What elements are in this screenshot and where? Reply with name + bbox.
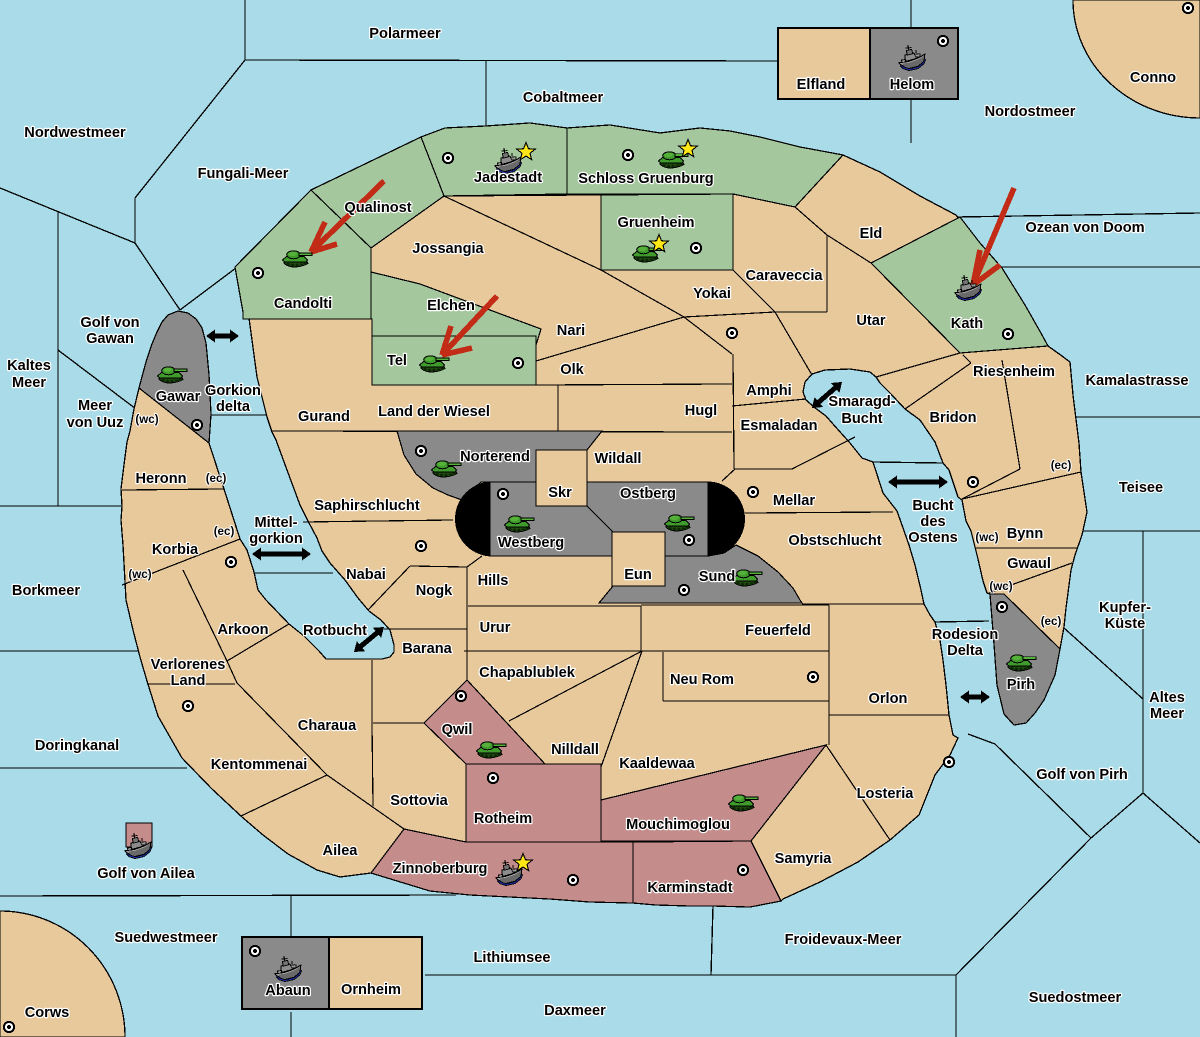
svg-text:Rotbucht: Rotbucht: [303, 623, 367, 639]
svg-text:Nabai: Nabai: [346, 567, 386, 583]
svg-text:Gawar: Gawar: [156, 389, 201, 405]
svg-text:Charaua: Charaua: [298, 718, 357, 734]
svg-text:(ec): (ec): [214, 525, 235, 538]
svg-text:Chapablublek: Chapablublek: [479, 665, 576, 681]
svg-text:Bridon: Bridon: [929, 410, 976, 426]
svg-text:Jossangia: Jossangia: [412, 241, 484, 257]
svg-text:Kamalastrasse: Kamalastrasse: [1085, 373, 1188, 389]
svg-text:Kaaldewaa: Kaaldewaa: [619, 756, 695, 772]
svg-text:Teisee: Teisee: [1119, 480, 1163, 496]
svg-text:Gruenheim: Gruenheim: [617, 215, 694, 231]
svg-text:Jadestadt: Jadestadt: [474, 170, 542, 186]
svg-text:Pirh: Pirh: [1007, 677, 1035, 693]
svg-text:Fungali-Meer: Fungali-Meer: [198, 166, 289, 182]
svg-text:Golf von Pirh: Golf von Pirh: [1036, 767, 1128, 783]
svg-text:Corws: Corws: [25, 1005, 70, 1021]
svg-text:Losteria: Losteria: [857, 786, 915, 802]
svg-text:Gurand: Gurand: [298, 409, 350, 425]
svg-text:Meer: Meer: [78, 398, 112, 414]
svg-text:Neu Rom: Neu Rom: [670, 672, 734, 688]
svg-text:Conno: Conno: [1130, 70, 1176, 86]
svg-text:Borkmeer: Borkmeer: [12, 583, 80, 599]
svg-text:Ozean von Doom: Ozean von Doom: [1025, 220, 1144, 236]
svg-text:des: des: [920, 514, 945, 530]
svg-text:Kentommenai: Kentommenai: [211, 757, 308, 773]
svg-text:(ec): (ec): [1041, 615, 1062, 628]
svg-text:Nordwestmeer: Nordwestmeer: [24, 125, 126, 141]
svg-text:(wc): (wc): [975, 531, 998, 544]
svg-text:Froidevaux-Meer: Froidevaux-Meer: [785, 932, 902, 948]
svg-text:Land der Wiesel: Land der Wiesel: [378, 404, 490, 420]
svg-text:Sottovia: Sottovia: [390, 793, 448, 809]
svg-text:Eld: Eld: [860, 226, 883, 242]
svg-text:Utar: Utar: [856, 313, 886, 329]
svg-text:Amphi: Amphi: [746, 383, 791, 399]
svg-text:Suedwestmeer: Suedwestmeer: [114, 930, 217, 946]
svg-text:Heronn: Heronn: [135, 471, 186, 487]
svg-text:Kath: Kath: [951, 316, 984, 332]
svg-text:Land: Land: [171, 673, 206, 689]
svg-text:Nogk: Nogk: [416, 583, 453, 599]
svg-text:Bucht: Bucht: [841, 411, 882, 427]
svg-text:Qwil: Qwil: [442, 722, 473, 738]
svg-text:Ornheim: Ornheim: [341, 982, 401, 998]
svg-text:Hills: Hills: [478, 573, 509, 589]
svg-text:Arkoon: Arkoon: [217, 622, 268, 638]
svg-text:Gorkion: Gorkion: [205, 383, 261, 399]
svg-text:Elfland: Elfland: [797, 77, 846, 93]
svg-text:Norterend: Norterend: [460, 449, 530, 465]
svg-text:Samyria: Samyria: [775, 851, 833, 867]
svg-text:Barana: Barana: [402, 641, 452, 657]
svg-text:Zinnoberburg: Zinnoberburg: [393, 861, 488, 877]
svg-text:delta: delta: [216, 399, 251, 415]
svg-text:Elchen: Elchen: [427, 298, 475, 314]
svg-text:(ec): (ec): [206, 472, 227, 485]
svg-text:Verlorenes: Verlorenes: [151, 657, 226, 673]
svg-text:Meer: Meer: [1150, 706, 1184, 722]
svg-text:Eun: Eun: [624, 567, 652, 583]
svg-text:Gawan: Gawan: [86, 331, 134, 347]
svg-text:Abaun: Abaun: [265, 983, 310, 999]
svg-text:Lithiumsee: Lithiumsee: [473, 950, 550, 966]
svg-text:(wc): (wc): [135, 413, 158, 426]
svg-text:Hugl: Hugl: [685, 403, 717, 419]
svg-text:Urur: Urur: [480, 620, 511, 636]
svg-text:Delta: Delta: [947, 643, 984, 659]
svg-text:Bucht: Bucht: [912, 498, 953, 514]
svg-text:Helom: Helom: [890, 77, 935, 93]
svg-text:Nordostmeer: Nordostmeer: [985, 104, 1076, 120]
svg-text:Olk: Olk: [560, 362, 584, 378]
svg-text:Esmaladan: Esmaladan: [740, 418, 817, 434]
svg-text:Caraveccia: Caraveccia: [745, 268, 823, 284]
svg-text:von Uuz: von Uuz: [67, 415, 124, 431]
svg-text:Wildall: Wildall: [595, 451, 642, 467]
svg-text:Altes: Altes: [1149, 690, 1185, 706]
svg-text:(ec): (ec): [1051, 459, 1072, 472]
svg-text:gorkion: gorkion: [249, 531, 303, 547]
svg-text:Kupfer-: Kupfer-: [1099, 600, 1151, 616]
svg-text:Orlon: Orlon: [869, 691, 908, 707]
svg-text:Sund: Sund: [699, 569, 735, 585]
svg-text:Rotheim: Rotheim: [474, 811, 532, 827]
svg-text:Ostens: Ostens: [908, 530, 957, 546]
svg-text:Smaragd-: Smaragd-: [828, 394, 895, 410]
svg-text:Saphirschlucht: Saphirschlucht: [314, 498, 420, 514]
svg-text:Bynn: Bynn: [1007, 526, 1044, 542]
svg-text:Golf von Ailea: Golf von Ailea: [97, 866, 195, 882]
svg-text:Golf von: Golf von: [80, 315, 139, 331]
svg-text:Ostberg: Ostberg: [620, 486, 676, 502]
svg-text:Westberg: Westberg: [498, 535, 564, 551]
svg-text:Karminstadt: Karminstadt: [647, 880, 732, 896]
svg-text:Doringkanal: Doringkanal: [35, 738, 119, 754]
svg-text:Candolti: Candolti: [274, 296, 332, 312]
svg-text:Rodesion: Rodesion: [932, 627, 999, 643]
svg-text:Kaltes: Kaltes: [7, 358, 51, 374]
svg-text:Ailea: Ailea: [323, 843, 359, 859]
svg-text:Qualinost: Qualinost: [344, 200, 411, 216]
svg-text:(wc): (wc): [128, 568, 151, 581]
svg-text:Skr: Skr: [548, 485, 572, 501]
svg-text:Meer: Meer: [12, 375, 46, 391]
svg-text:Nilldall: Nilldall: [551, 742, 599, 758]
svg-text:Mittel-: Mittel-: [255, 515, 298, 531]
svg-text:Polarmeer: Polarmeer: [369, 26, 441, 42]
svg-text:Gwaul: Gwaul: [1007, 556, 1051, 572]
svg-text:Yokai: Yokai: [693, 286, 731, 302]
svg-text:Schloss Gruenburg: Schloss Gruenburg: [578, 171, 713, 187]
svg-text:(wc): (wc): [989, 580, 1012, 593]
svg-text:Feuerfeld: Feuerfeld: [745, 623, 811, 639]
svg-text:Tel: Tel: [387, 353, 407, 369]
svg-text:Mellar: Mellar: [773, 493, 815, 509]
svg-text:Riesenheim: Riesenheim: [973, 364, 1055, 380]
svg-text:Nari: Nari: [557, 323, 585, 339]
svg-text:Korbia: Korbia: [152, 542, 199, 558]
svg-text:Mouchimoglou: Mouchimoglou: [626, 817, 730, 833]
svg-text:Küste: Küste: [1105, 616, 1146, 632]
svg-text:Suedostmeer: Suedostmeer: [1029, 990, 1122, 1006]
svg-text:Daxmeer: Daxmeer: [544, 1003, 606, 1019]
svg-text:Obstschlucht: Obstschlucht: [788, 533, 881, 549]
svg-text:Cobaltmeer: Cobaltmeer: [523, 90, 604, 106]
